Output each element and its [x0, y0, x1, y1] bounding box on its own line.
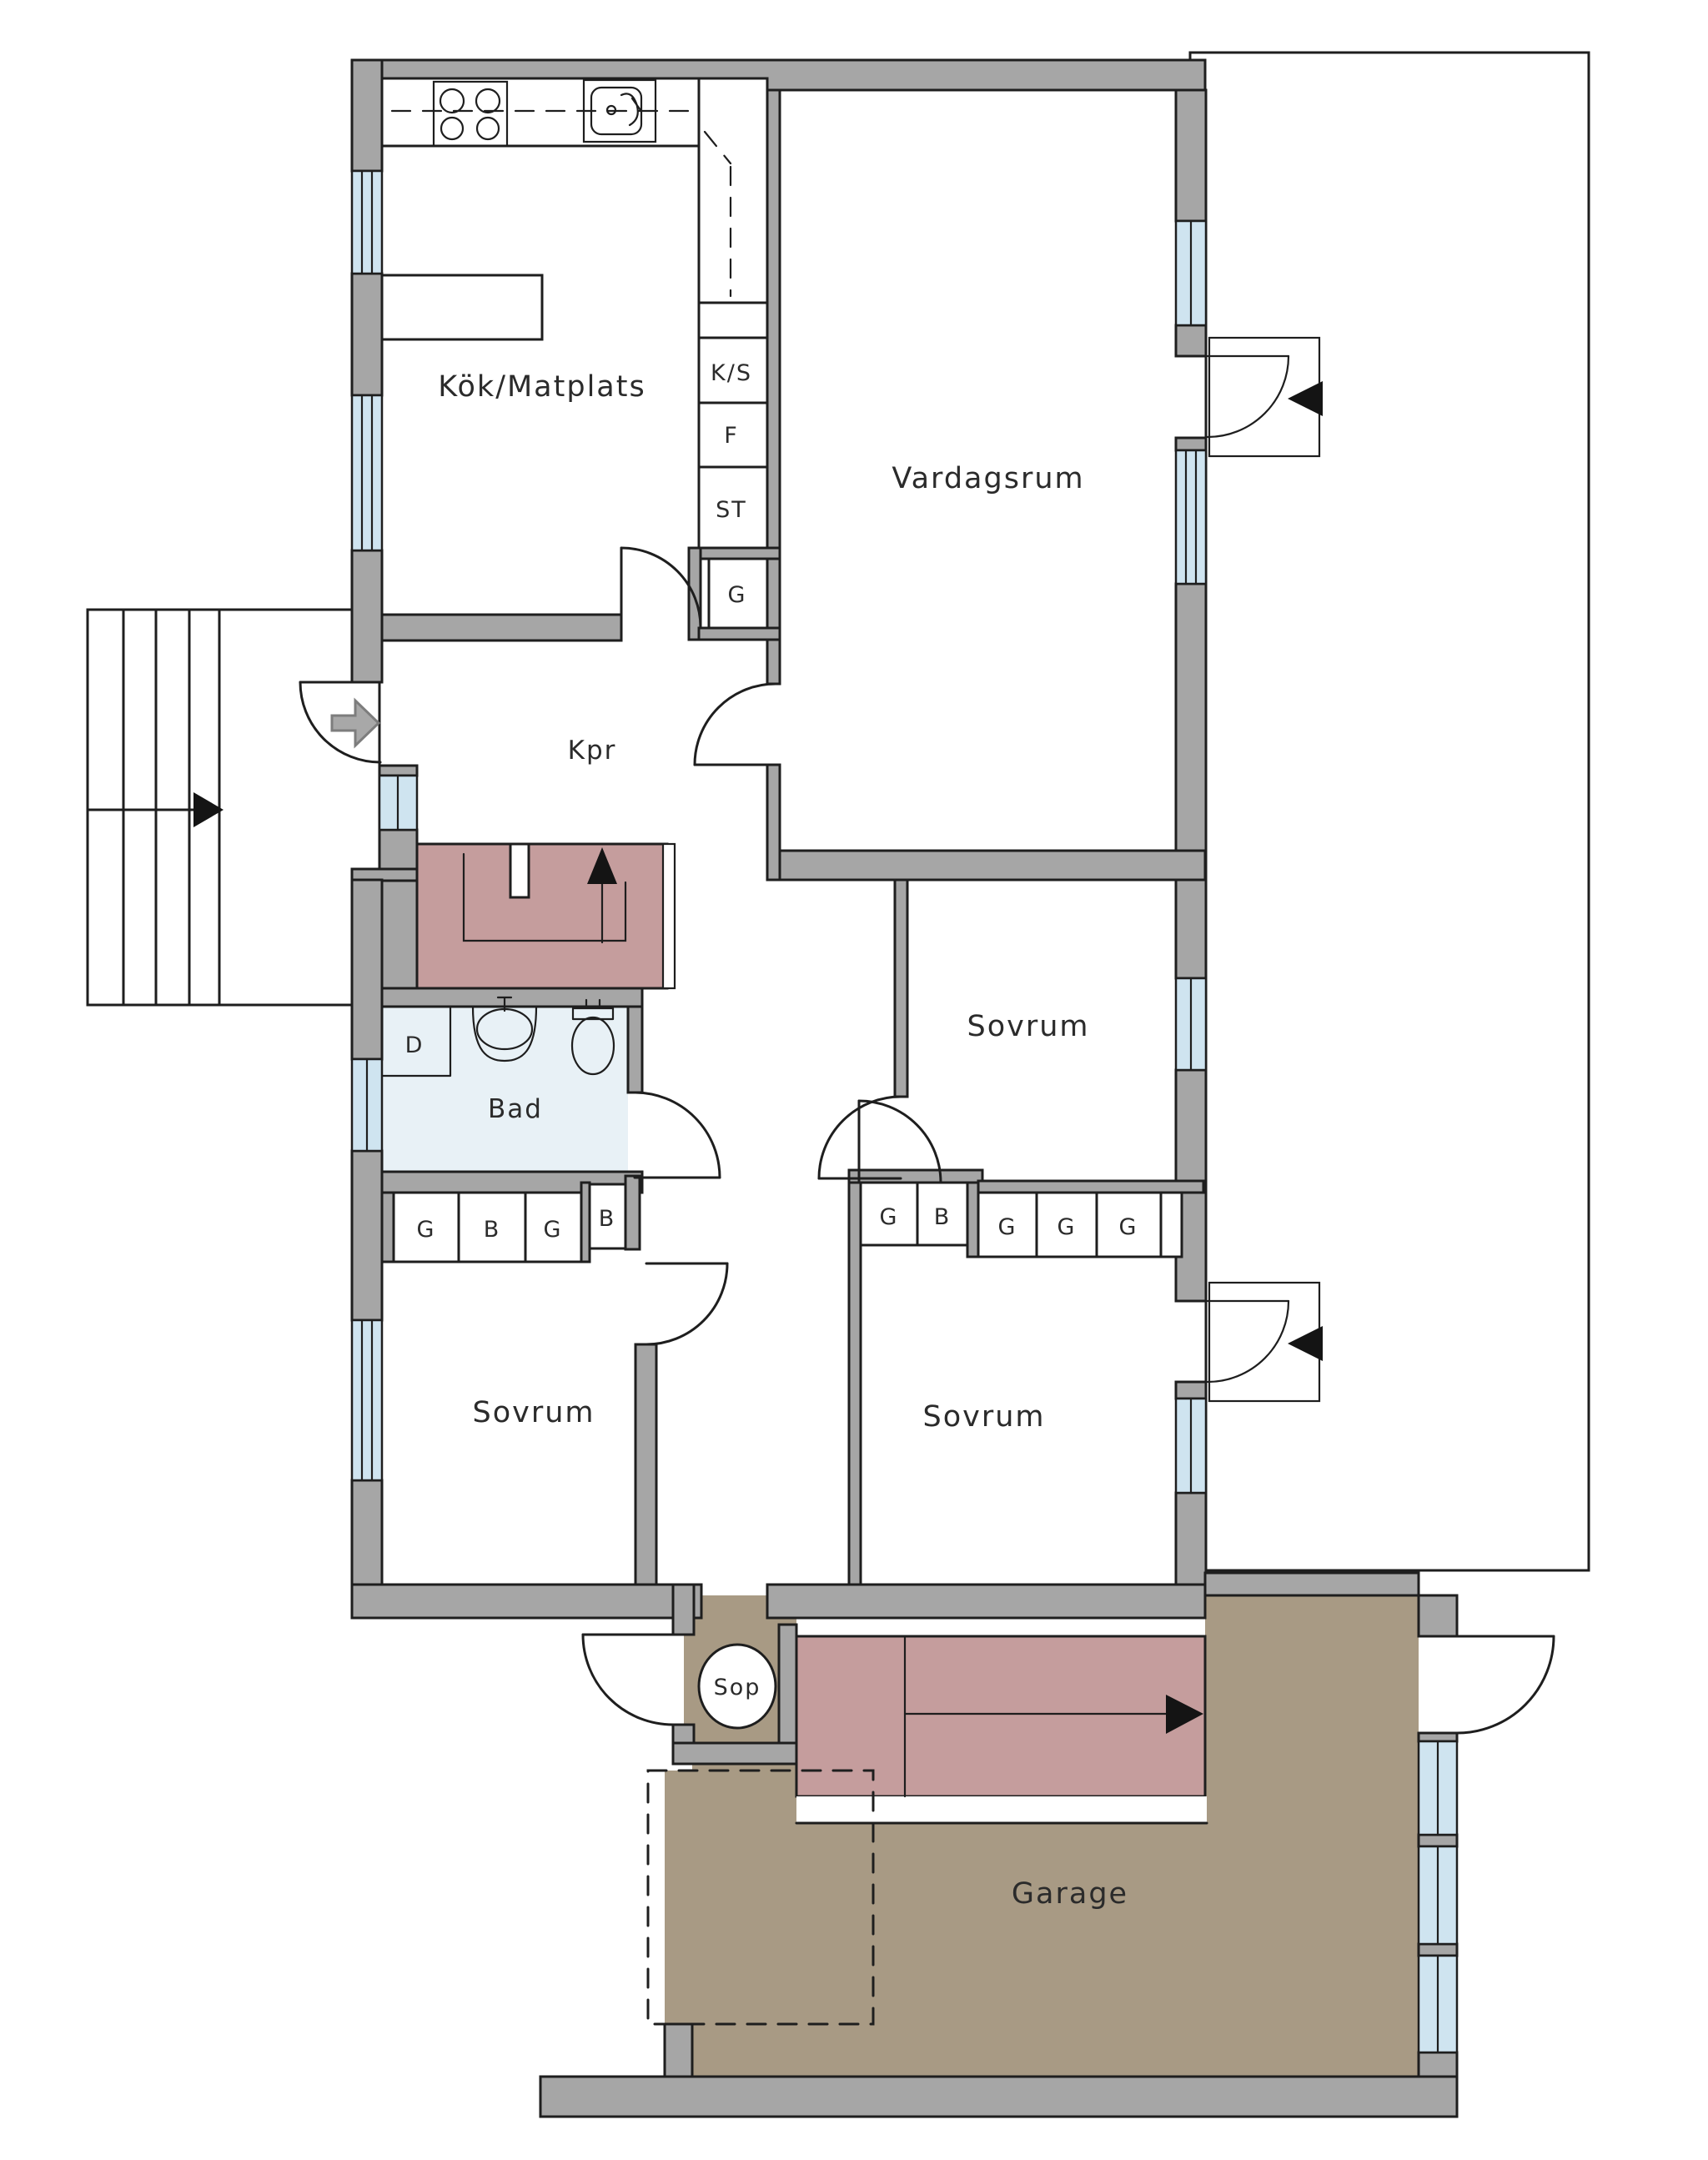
- wall: [1176, 325, 1206, 356]
- closet-label: B: [934, 1204, 952, 1230]
- wall: [352, 550, 382, 682]
- room-label-hall: Kpr: [568, 736, 617, 766]
- wall: [379, 830, 417, 988]
- window: [352, 395, 382, 550]
- closet-label: G: [880, 1204, 899, 1230]
- wall: [665, 2024, 692, 2077]
- window: [1176, 1399, 1206, 1493]
- closet-label: G: [1119, 1214, 1138, 1240]
- window: [1176, 978, 1206, 1070]
- wall: [635, 1344, 656, 1585]
- wall: [1419, 1835, 1457, 1846]
- wall: [780, 851, 1205, 880]
- closet-label: G: [544, 1217, 563, 1243]
- wall: [967, 1183, 978, 1257]
- cabinet-label-f: F: [724, 423, 739, 449]
- wall: [779, 1625, 796, 1743]
- window: [1176, 450, 1206, 584]
- room-label-bedroom-right: Sovrum: [967, 1010, 1089, 1043]
- wall: [699, 548, 780, 559]
- floorplan-canvas: Kök/Matplats Vardagsrum Kpr Bad D Sovrum…: [0, 0, 1708, 2160]
- room-label-bedroom-left: Sovrum: [472, 1396, 595, 1429]
- outdoor-layer: [88, 53, 1589, 1570]
- window: [1419, 1846, 1457, 1944]
- bath-floor: [382, 1007, 628, 1172]
- wall: [1176, 1382, 1206, 1399]
- kitchen-counter-column: [699, 78, 767, 303]
- deck-terrace: [1190, 53, 1589, 1570]
- wall: [628, 1007, 642, 1093]
- wall: [352, 1151, 382, 1320]
- cabinet-box: [699, 303, 767, 338]
- window: [352, 171, 382, 274]
- cabinet-label-ks: K/S: [711, 360, 752, 386]
- closet-label-g: G: [728, 582, 747, 608]
- bedroom-left-door-arc: [646, 1263, 727, 1344]
- room-label-living: Vardagsrum: [892, 462, 1084, 495]
- stairs-garage: [796, 1636, 1205, 1796]
- wall: [689, 548, 701, 640]
- room-label-kitchen: Kök/Matplats: [438, 370, 646, 404]
- closet-label: G: [1057, 1214, 1077, 1240]
- window: [352, 1320, 382, 1480]
- wall: [1419, 1595, 1457, 1636]
- wall: [767, 1585, 1205, 1618]
- closet-label: B: [599, 1206, 616, 1232]
- entry-platform: [88, 610, 379, 1005]
- wall: [625, 1176, 640, 1249]
- closet-box: [1161, 1193, 1182, 1257]
- closet-label: G: [417, 1217, 436, 1243]
- wall: [540, 2077, 1457, 2117]
- wall: [1419, 1944, 1457, 1956]
- window: [352, 1059, 382, 1151]
- stairs-garage-bottom-landing: [796, 1796, 1207, 1823]
- window: [379, 776, 417, 830]
- room-label-garage: Garage: [1012, 1877, 1128, 1911]
- stairs-indoor: [417, 844, 667, 988]
- patio-living-arrow-icon: [1288, 381, 1323, 416]
- cabinet-label-st: ST: [716, 497, 747, 523]
- window: [1419, 1956, 1457, 2052]
- window: [1419, 1741, 1457, 1835]
- wall: [895, 880, 907, 1097]
- waste-label: Sop: [714, 1675, 761, 1700]
- wall: [673, 1585, 694, 1635]
- wall: [849, 1170, 982, 1183]
- stairs-indoor-notch: [510, 844, 529, 897]
- wall: [1176, 90, 1206, 221]
- room-label-bedroom-middle: Sovrum: [922, 1400, 1045, 1434]
- wall: [673, 1743, 796, 1764]
- room-label-bath: Bad: [488, 1094, 543, 1124]
- kitchen-fixtures: [382, 78, 767, 628]
- window: [1176, 221, 1206, 325]
- bath-door-arc: [635, 1093, 720, 1178]
- wall: [352, 1585, 701, 1618]
- wall: [379, 766, 417, 776]
- wall: [382, 615, 621, 640]
- side-exit-door-arc: [583, 1635, 673, 1725]
- wall: [978, 1181, 1203, 1193]
- wall: [1176, 1493, 1206, 1585]
- shower-label: D: [405, 1032, 424, 1058]
- wall: [352, 60, 382, 171]
- closet-label: B: [484, 1217, 501, 1243]
- kitchen-counter: [382, 78, 699, 146]
- living-door-arc: [695, 684, 776, 765]
- wall: [382, 1193, 394, 1262]
- wall: [699, 628, 780, 640]
- garage-door-arc: [1457, 1636, 1554, 1733]
- stairs-indoor-landing: [663, 844, 675, 988]
- stairs-garage-top-landing: [796, 1616, 1205, 1636]
- wall: [849, 1183, 861, 1585]
- patio-bedroom-arrow-icon: [1288, 1326, 1323, 1361]
- entry-arrow-icon: [332, 701, 379, 746]
- floorplan-page: Kök/Matplats Vardagsrum Kpr Bad D Sovrum…: [0, 0, 1708, 2160]
- wall: [767, 765, 780, 880]
- wall: [1205, 1573, 1419, 1595]
- closet-label: G: [998, 1214, 1017, 1240]
- wall: [1419, 1733, 1457, 1741]
- kitchen-table: [382, 275, 542, 339]
- wall: [352, 880, 382, 1059]
- wall: [1176, 584, 1206, 978]
- wall: [767, 90, 780, 684]
- wall: [352, 274, 382, 395]
- wall: [1176, 438, 1206, 450]
